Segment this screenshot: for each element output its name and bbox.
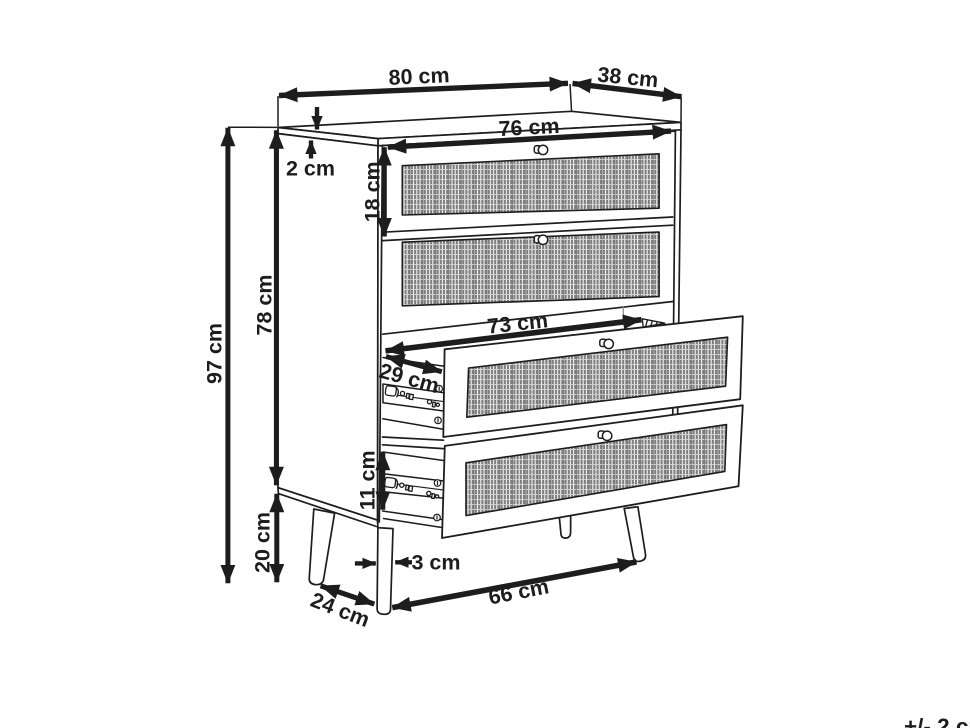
svg-text:2 cm: 2 cm bbox=[286, 157, 335, 181]
svg-text:+/- 2 cm: +/- 2 cm bbox=[904, 714, 970, 728]
svg-text:78 cm: 78 cm bbox=[253, 275, 277, 336]
svg-text:20 cm: 20 cm bbox=[251, 512, 275, 573]
svg-text:80 cm: 80 cm bbox=[388, 63, 450, 90]
svg-text:11 cm: 11 cm bbox=[356, 450, 380, 510]
svg-text:18 cm: 18 cm bbox=[361, 161, 385, 222]
svg-text:66 cm: 66 cm bbox=[486, 574, 550, 609]
svg-text:97 cm: 97 cm bbox=[203, 323, 227, 384]
svg-text:76 cm: 76 cm bbox=[498, 114, 560, 141]
svg-text:3 cm: 3 cm bbox=[411, 551, 460, 575]
